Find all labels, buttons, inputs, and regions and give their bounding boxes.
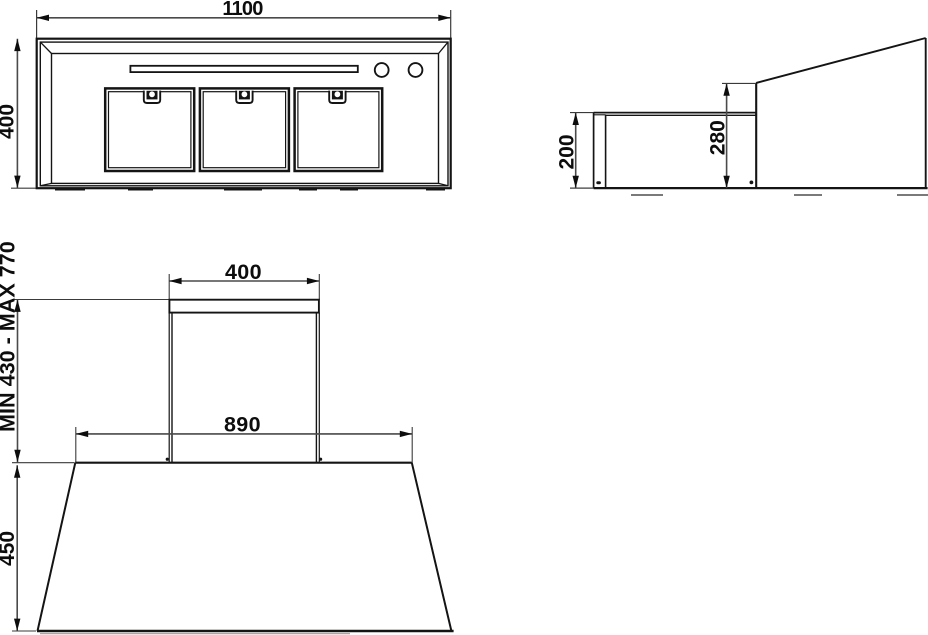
svg-text:280: 280: [707, 120, 730, 155]
svg-text:450: 450: [0, 531, 19, 566]
svg-text:400: 400: [225, 260, 262, 284]
svg-text:MIN 430 - MAX 770: MIN 430 - MAX 770: [0, 241, 20, 432]
svg-text:400: 400: [0, 104, 19, 139]
svg-text:890: 890: [224, 413, 261, 437]
svg-text:200: 200: [556, 134, 579, 169]
svg-text:1100: 1100: [222, 0, 263, 20]
